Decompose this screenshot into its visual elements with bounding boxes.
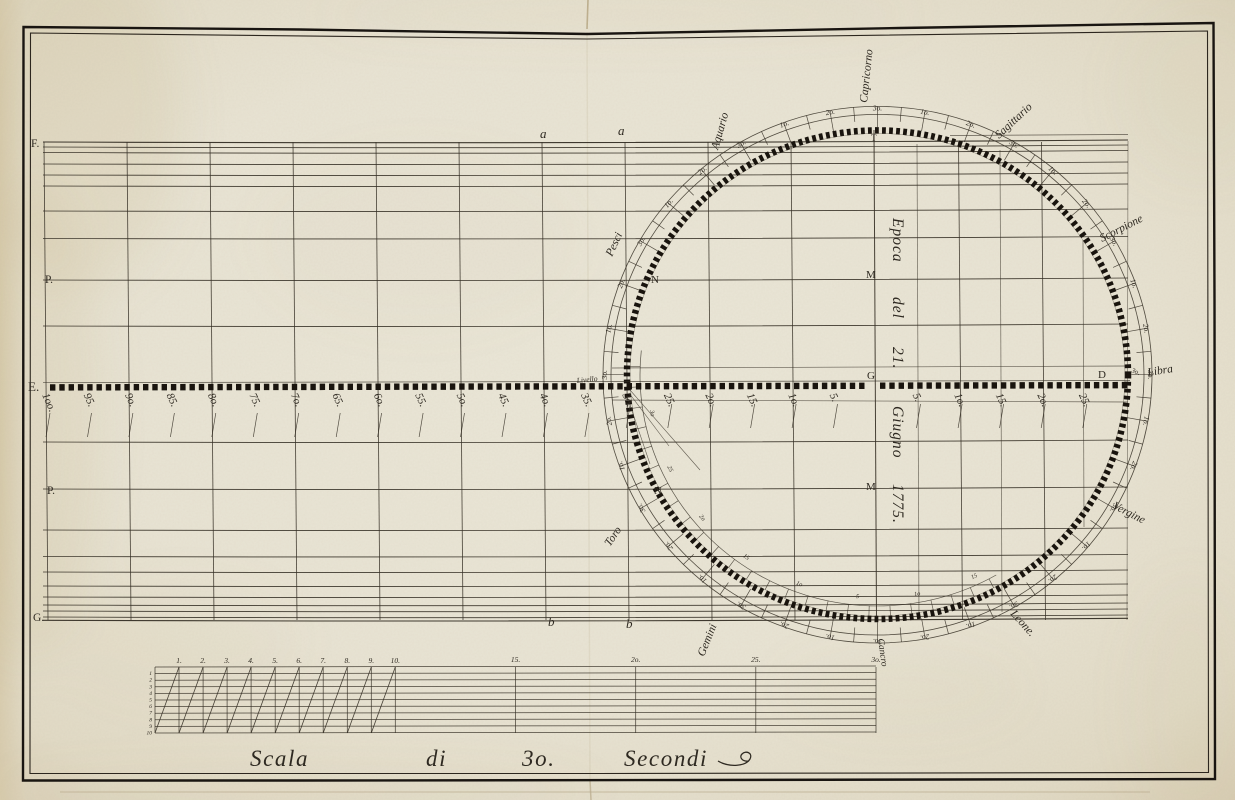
svg-text:2o.: 2o. [1141, 323, 1151, 334]
svg-text:M: M [866, 269, 876, 281]
svg-text:10: 10 [147, 731, 153, 737]
svg-text:6.: 6. [296, 656, 302, 665]
svg-text:2o.: 2o. [919, 632, 930, 642]
svg-text:1o.: 1o. [1141, 416, 1151, 427]
svg-text:2o.: 2o. [631, 655, 641, 664]
svg-text:D: D [1098, 369, 1106, 381]
svg-text:N: N [654, 485, 662, 497]
svg-text:5: 5 [149, 698, 152, 704]
svg-text:1: 1 [149, 671, 152, 677]
svg-text:3o.: 3o. [600, 370, 609, 380]
svg-text:1775.: 1775. [889, 484, 906, 524]
svg-text:15.: 15. [511, 655, 521, 664]
svg-text:G.: G. [33, 612, 44, 624]
svg-text:del: del [889, 297, 906, 319]
svg-text:N: N [651, 274, 659, 286]
svg-text:21.: 21. [889, 347, 906, 369]
svg-text:5: 5 [856, 593, 860, 600]
svg-text:4.: 4. [248, 656, 254, 665]
svg-text:T: T [871, 133, 877, 143]
svg-text:b: b [626, 616, 633, 631]
svg-text:Secondi: Secondi [624, 746, 708, 771]
svg-text:3o: 3o [648, 409, 656, 417]
svg-text:5.: 5. [272, 656, 278, 665]
svg-text:10.: 10. [391, 656, 401, 665]
svg-text:P.: P. [47, 485, 55, 497]
svg-text:Epoca: Epoca [889, 217, 906, 263]
svg-text:7.: 7. [320, 656, 326, 665]
svg-text:3.: 3. [223, 656, 230, 665]
svg-text:8.: 8. [344, 656, 350, 665]
svg-text:a: a [618, 123, 625, 138]
svg-text:3o.: 3o. [870, 655, 881, 664]
svg-text:2o.: 2o. [825, 107, 836, 117]
svg-text:1o.: 1o. [825, 632, 836, 642]
svg-text:M: M [866, 481, 876, 493]
svg-text:1o.: 1o. [920, 107, 931, 117]
svg-text:2o.: 2o. [603, 416, 613, 427]
svg-text:9: 9 [149, 724, 152, 730]
svg-text:1o.: 1o. [603, 323, 613, 334]
svg-text:3o.: 3o. [872, 103, 882, 112]
svg-text:2: 2 [149, 678, 152, 684]
svg-text:E.: E. [28, 379, 39, 394]
svg-text:F.: F. [31, 138, 39, 150]
svg-text:9.: 9. [368, 656, 374, 665]
svg-text:3o.: 3o. [521, 746, 556, 771]
svg-text:b: b [548, 614, 555, 629]
svg-text:P.: P. [45, 274, 53, 286]
svg-text:4: 4 [149, 690, 152, 697]
svg-text:1.: 1. [176, 656, 182, 665]
svg-text:1o: 1o [914, 590, 921, 598]
svg-text:G: G [867, 370, 875, 382]
svg-text:Giugno: Giugno [889, 406, 906, 459]
svg-text:Scala: Scala [250, 746, 309, 771]
svg-text:7: 7 [149, 711, 152, 717]
svg-text:di: di [426, 746, 447, 771]
svg-text:a: a [540, 126, 547, 141]
svg-text:25.: 25. [751, 655, 761, 664]
svg-text:8: 8 [149, 717, 152, 723]
svg-text:2.: 2. [200, 656, 206, 665]
svg-text:6: 6 [149, 704, 152, 710]
svg-text:3: 3 [148, 684, 152, 690]
